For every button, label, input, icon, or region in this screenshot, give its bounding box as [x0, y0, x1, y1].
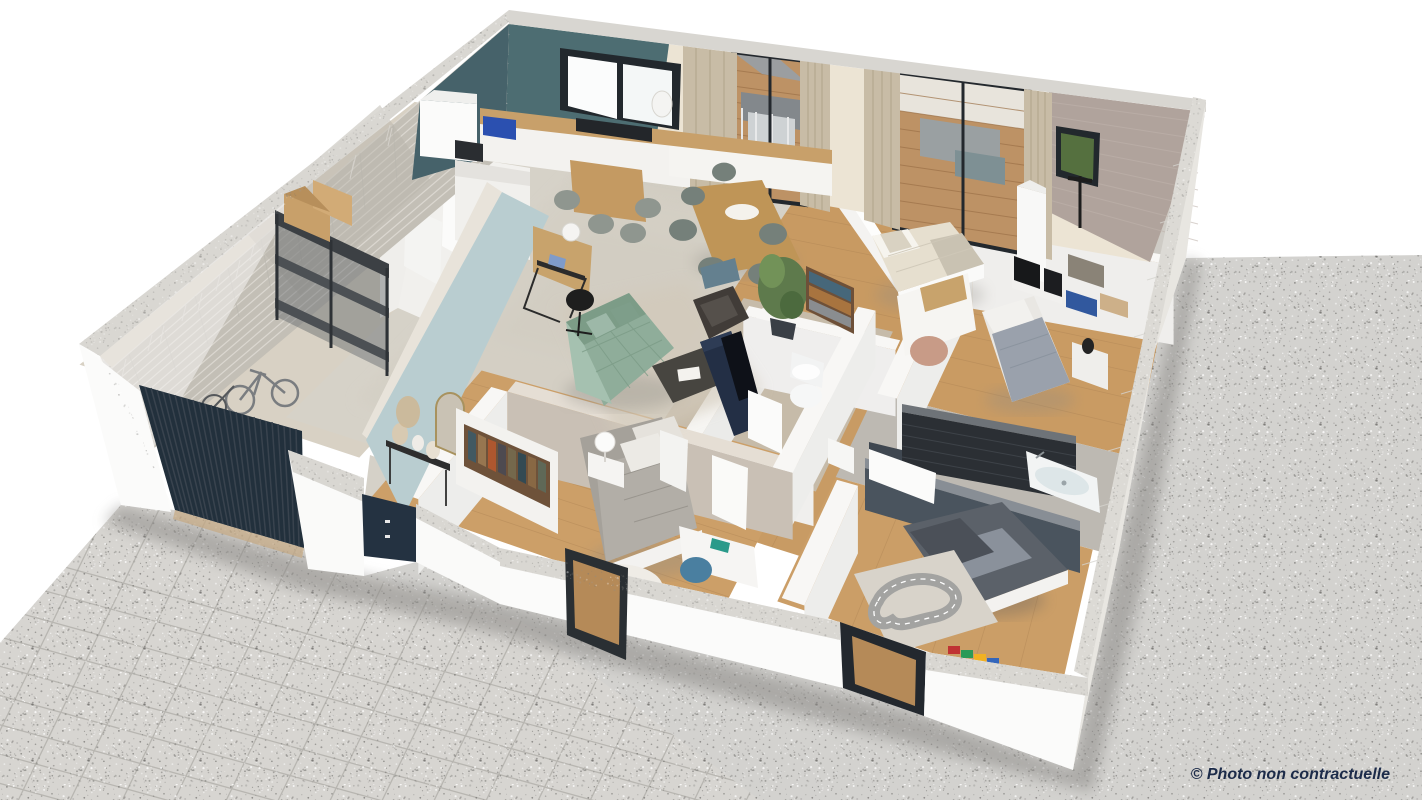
svg-text:© Photo non contractuelle: © Photo non contractuelle: [1191, 766, 1390, 783]
